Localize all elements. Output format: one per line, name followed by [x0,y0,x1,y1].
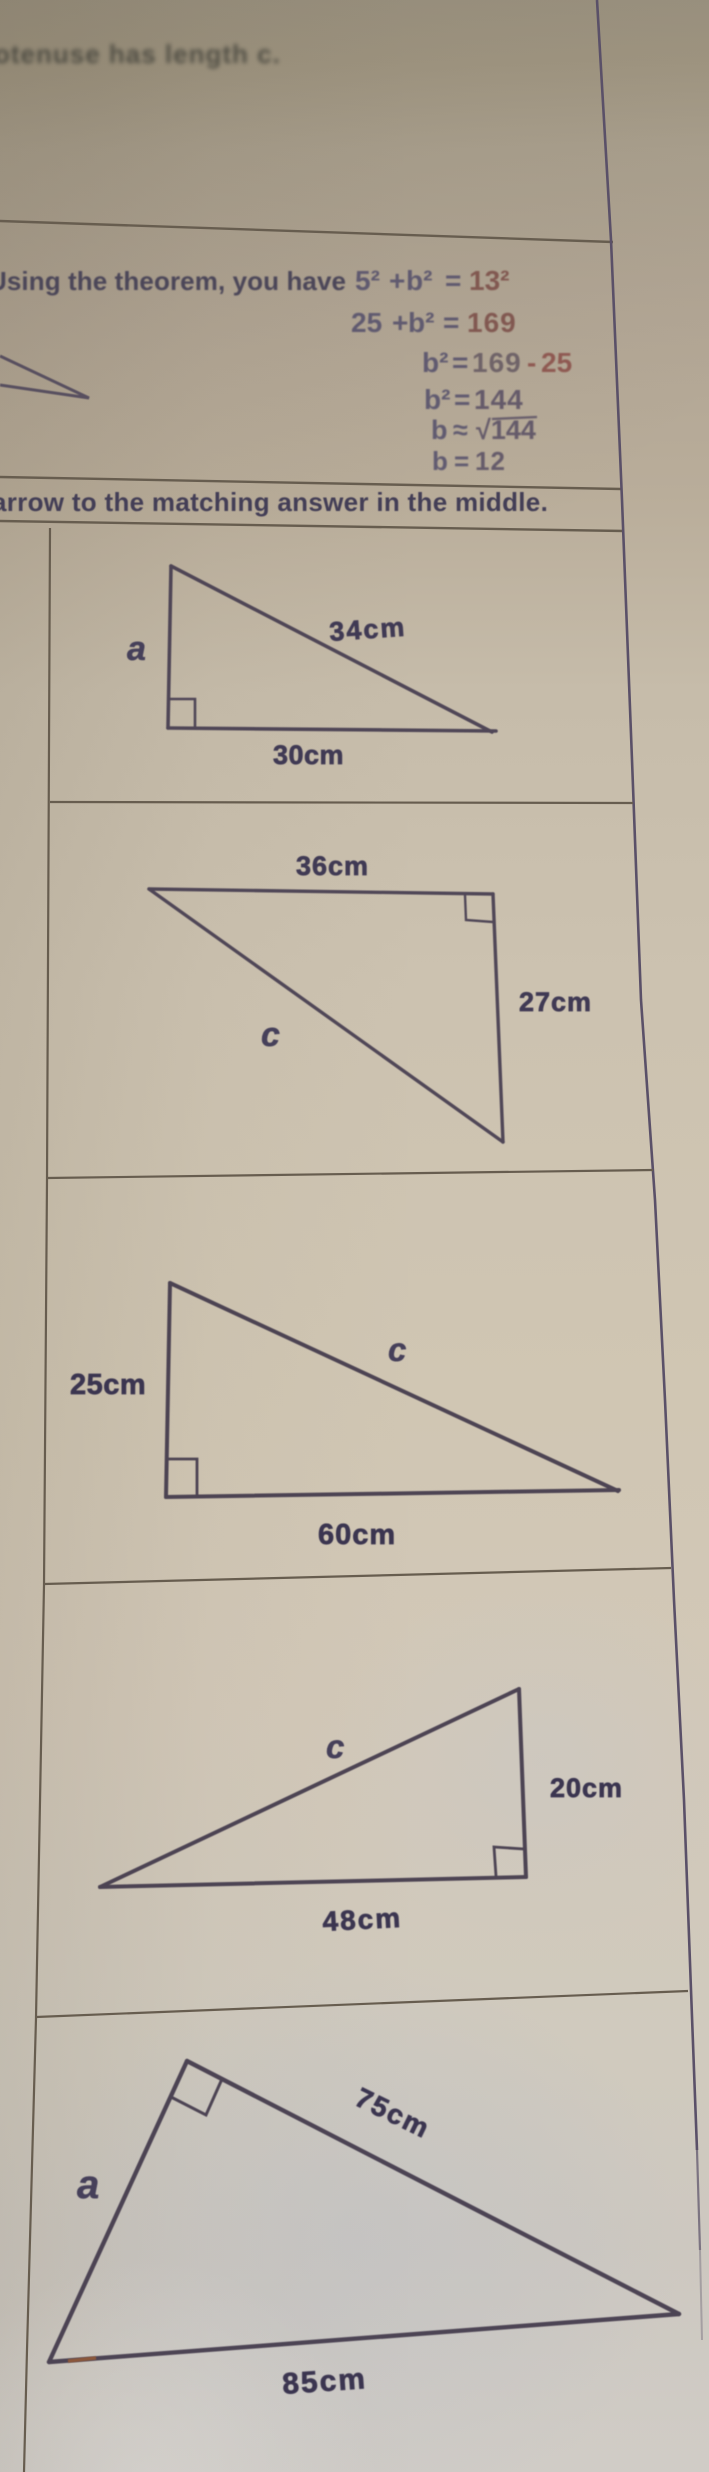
svg-text:144: 144 [474,384,524,415]
svg-text:60cm: 60cm [318,1519,396,1551]
svg-text:169: 169 [467,307,517,338]
svg-text:b²: b² [424,384,450,415]
svg-text:=: = [445,265,461,296]
svg-text:25cm: 25cm [70,1369,146,1401]
svg-text:c: c [326,1728,344,1765]
svg-text:√144: √144 [476,415,536,445]
svg-text:25: 25 [351,307,382,338]
svg-text:+: + [392,307,408,338]
svg-text:c: c [261,1016,280,1054]
svg-text:b²: b² [422,347,448,378]
svg-text:13²: 13² [469,265,509,296]
svg-text:Using the theorem, you have: Using the theorem, you have [0,266,346,296]
svg-text:20cm: 20cm [550,1773,623,1803]
svg-text:85cm: 85cm [281,2362,368,2401]
svg-text:≈: ≈ [453,415,468,445]
svg-text:a: a [127,630,146,668]
svg-text:169: 169 [472,347,522,378]
svg-text:-: - [527,347,536,378]
svg-text:12: 12 [475,446,506,476]
svg-text:48cm: 48cm [322,1902,403,1937]
svg-text:25: 25 [541,347,572,378]
svg-text:b²: b² [406,265,432,296]
svg-text:a: a [77,2163,99,2207]
svg-text:b: b [432,446,448,476]
svg-text:arrow to the matching answer i: arrow to the matching answer in the midd… [0,487,548,517]
svg-text:=: = [454,446,469,476]
svg-text:=: = [443,307,459,338]
svg-text:b: b [431,415,448,445]
svg-text:30cm: 30cm [273,740,344,770]
svg-text:=: = [452,347,468,378]
svg-text:36cm: 36cm [296,851,369,881]
svg-text:+: + [389,265,405,296]
svg-text:34cm: 34cm [328,612,407,647]
svg-text:=: = [454,384,470,415]
svg-text:otenuse has length c.: otenuse has length c. [0,39,281,69]
svg-text:27cm: 27cm [519,987,592,1017]
svg-text:b²: b² [408,307,434,338]
svg-text:c: c [388,1331,406,1368]
svg-text:5²: 5² [355,265,380,296]
